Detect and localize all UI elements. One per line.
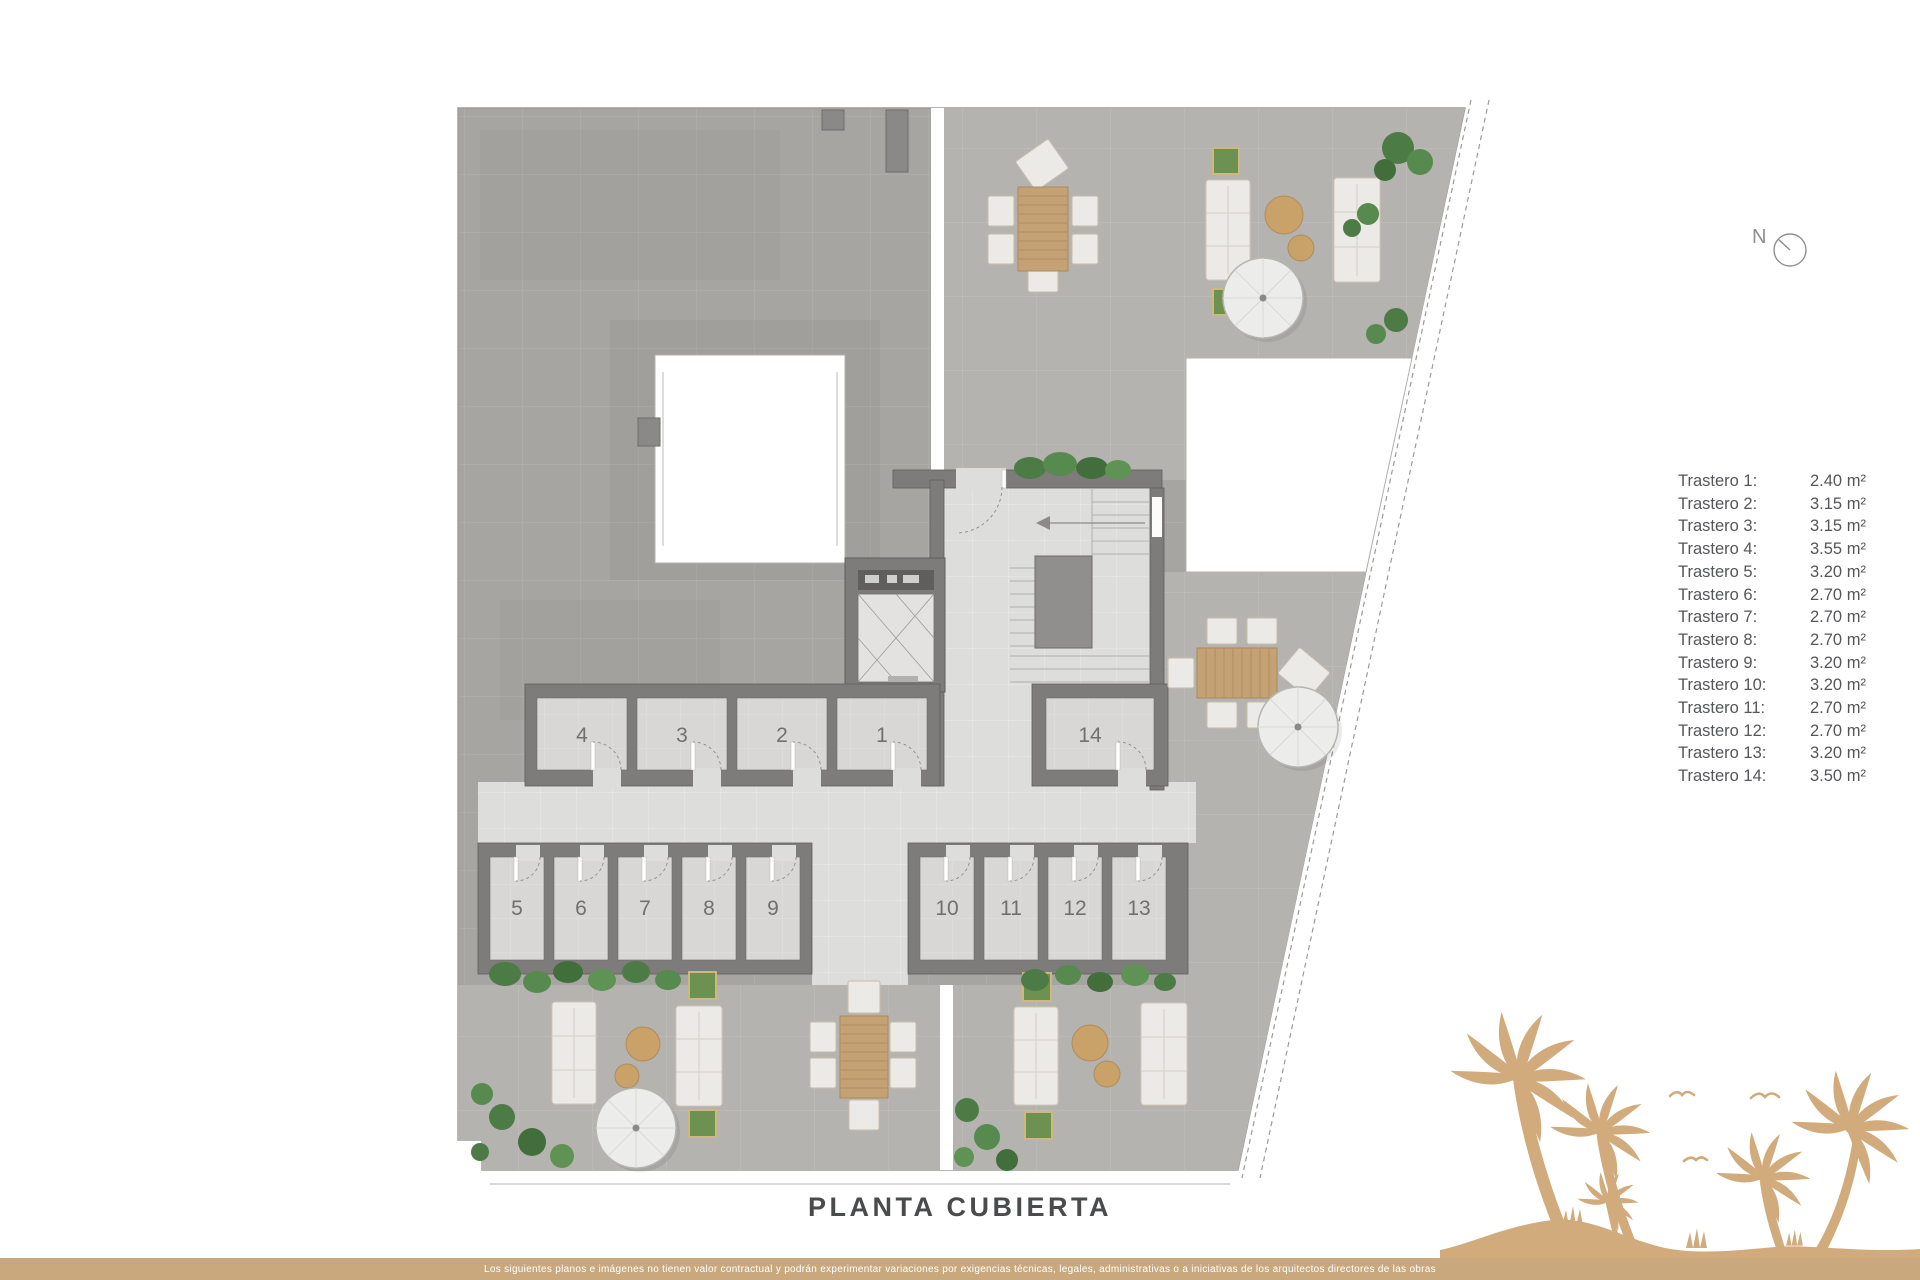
legend-value: 2.70 m² (1810, 584, 1866, 607)
legend-label: Trastero 12: (1678, 720, 1790, 743)
legend-value: 2.70 m² (1810, 720, 1866, 743)
legend-row: Trastero 8:2.70 m² (1678, 629, 1868, 652)
grass-tuft (1686, 1228, 1707, 1248)
legend-row: Trastero 12:2.70 m² (1678, 720, 1868, 743)
room-number-12: 12 (1063, 897, 1086, 920)
palm-decoration (1440, 1012, 1920, 1263)
legend-value: 3.55 m² (1810, 538, 1866, 561)
legend-label: Trastero 1: (1678, 470, 1790, 493)
void-right (1186, 358, 1412, 572)
gap-strip-top (931, 108, 944, 480)
legend-label: Trastero 2: (1678, 493, 1790, 516)
room-number-2: 2 (776, 724, 788, 747)
void-left (655, 355, 845, 563)
corridor-south (812, 843, 908, 985)
birds (1670, 1092, 1779, 1161)
legend-value: 3.20 m² (1810, 674, 1866, 697)
window-slit (1152, 497, 1162, 537)
footer-disclaimer-bar: Los siguientes planos e imágenes no tien… (0, 1258, 1920, 1280)
planter (1213, 148, 1239, 174)
elevator (845, 558, 945, 692)
legend-value: 3.20 m² (1810, 742, 1866, 765)
legend-row: Trastero 11:2.70 m² (1678, 697, 1868, 720)
legend-value: 3.20 m² (1810, 561, 1866, 584)
legend-row: Trastero 1:2.40 m² (1678, 470, 1868, 493)
legend-row: Trastero 4:3.55 m² (1678, 538, 1868, 561)
room-number-1: 1 (876, 724, 888, 747)
legend-label: Trastero 4: (1678, 538, 1790, 561)
legend-row: Trastero 10:3.20 m² (1678, 674, 1868, 697)
room-number-5: 5 (511, 897, 523, 920)
grass-tuft (1786, 1230, 1803, 1246)
legend-value: 3.15 m² (1810, 493, 1866, 516)
legend-value: 2.70 m² (1810, 697, 1866, 720)
legend-value: 2.40 m² (1810, 470, 1866, 493)
sand-mound (1440, 1220, 1920, 1258)
room-number-4: 4 (576, 724, 588, 747)
legend-row: Trastero 9:3.20 m² (1678, 652, 1868, 675)
legend-row: Trastero 7:2.70 m² (1678, 606, 1868, 629)
room-number-3: 3 (676, 724, 688, 747)
legend-label: Trastero 8: (1678, 629, 1790, 652)
coffee-table (1094, 1061, 1120, 1087)
storage-legend: Trastero 1:2.40 m² Trastero 2:3.15 m² Tr… (1678, 470, 1868, 788)
room-number-9: 9 (767, 897, 779, 920)
planter (689, 1110, 716, 1137)
legend-value: 3.15 m² (1810, 515, 1866, 538)
coffee-table (1072, 1025, 1108, 1061)
corridor-horizontal (478, 782, 1196, 843)
legend-row: Trastero 5:3.20 m² (1678, 561, 1868, 584)
legend-label: Trastero 3: (1678, 515, 1790, 538)
legend-label: Trastero 13: (1678, 742, 1790, 765)
floorplan-page: 4 3 2 1 14 5 6 7 8 9 10 11 12 13 (0, 0, 1920, 1280)
compass-needle (1778, 239, 1790, 250)
legend-label: Trastero 14: (1678, 765, 1790, 788)
legend-label: Trastero 5: (1678, 561, 1790, 584)
room-number-7: 7 (639, 897, 651, 920)
legend-label: Trastero 7: (1678, 606, 1790, 629)
legend-value: 3.50 m² (1810, 765, 1866, 788)
legend-value: 2.70 m² (1810, 629, 1866, 652)
legend-value: 3.20 m² (1810, 652, 1866, 675)
coffee-table (615, 1064, 639, 1088)
legend-label: Trastero 10: (1678, 674, 1790, 697)
compass-north-label: N (1752, 226, 1766, 248)
legend-row: Trastero 14:3.50 m² (1678, 765, 1868, 788)
legend-label: Trastero 11: (1678, 697, 1790, 720)
room-number-6: 6 (575, 897, 587, 920)
room-number-11: 11 (1000, 897, 1022, 920)
legend-label: Trastero 6: (1678, 584, 1790, 607)
planter (689, 972, 716, 999)
room-number-8: 8 (703, 897, 715, 920)
coffee-table (1288, 235, 1314, 261)
room-number-10: 10 (935, 897, 958, 920)
legend-row: Trastero 13:3.20 m² (1678, 742, 1868, 765)
legend-row: Trastero 3:3.15 m² (1678, 515, 1868, 538)
coffee-table (626, 1027, 660, 1061)
legend-label: Trastero 9: (1678, 652, 1790, 675)
planter (1025, 1112, 1052, 1139)
disclaimer-text: Los siguientes planos e imágenes no tien… (484, 1264, 1436, 1275)
compass: N (1752, 226, 1806, 266)
room-number-13: 13 (1127, 897, 1150, 920)
room-number-14: 14 (1078, 724, 1102, 747)
palm-tree (1791, 1071, 1909, 1263)
floor-plan-svg: 4 3 2 1 14 5 6 7 8 9 10 11 12 13 (0, 0, 1920, 1280)
legend-value: 2.70 m² (1810, 606, 1866, 629)
coffee-table (1265, 196, 1303, 234)
page-title: PLANTA CUBIERTA (0, 1192, 1920, 1223)
gap-strip-bottom (940, 985, 953, 1170)
legend-row: Trastero 6:2.70 m² (1678, 584, 1868, 607)
legend-row: Trastero 2:3.15 m² (1678, 493, 1868, 516)
